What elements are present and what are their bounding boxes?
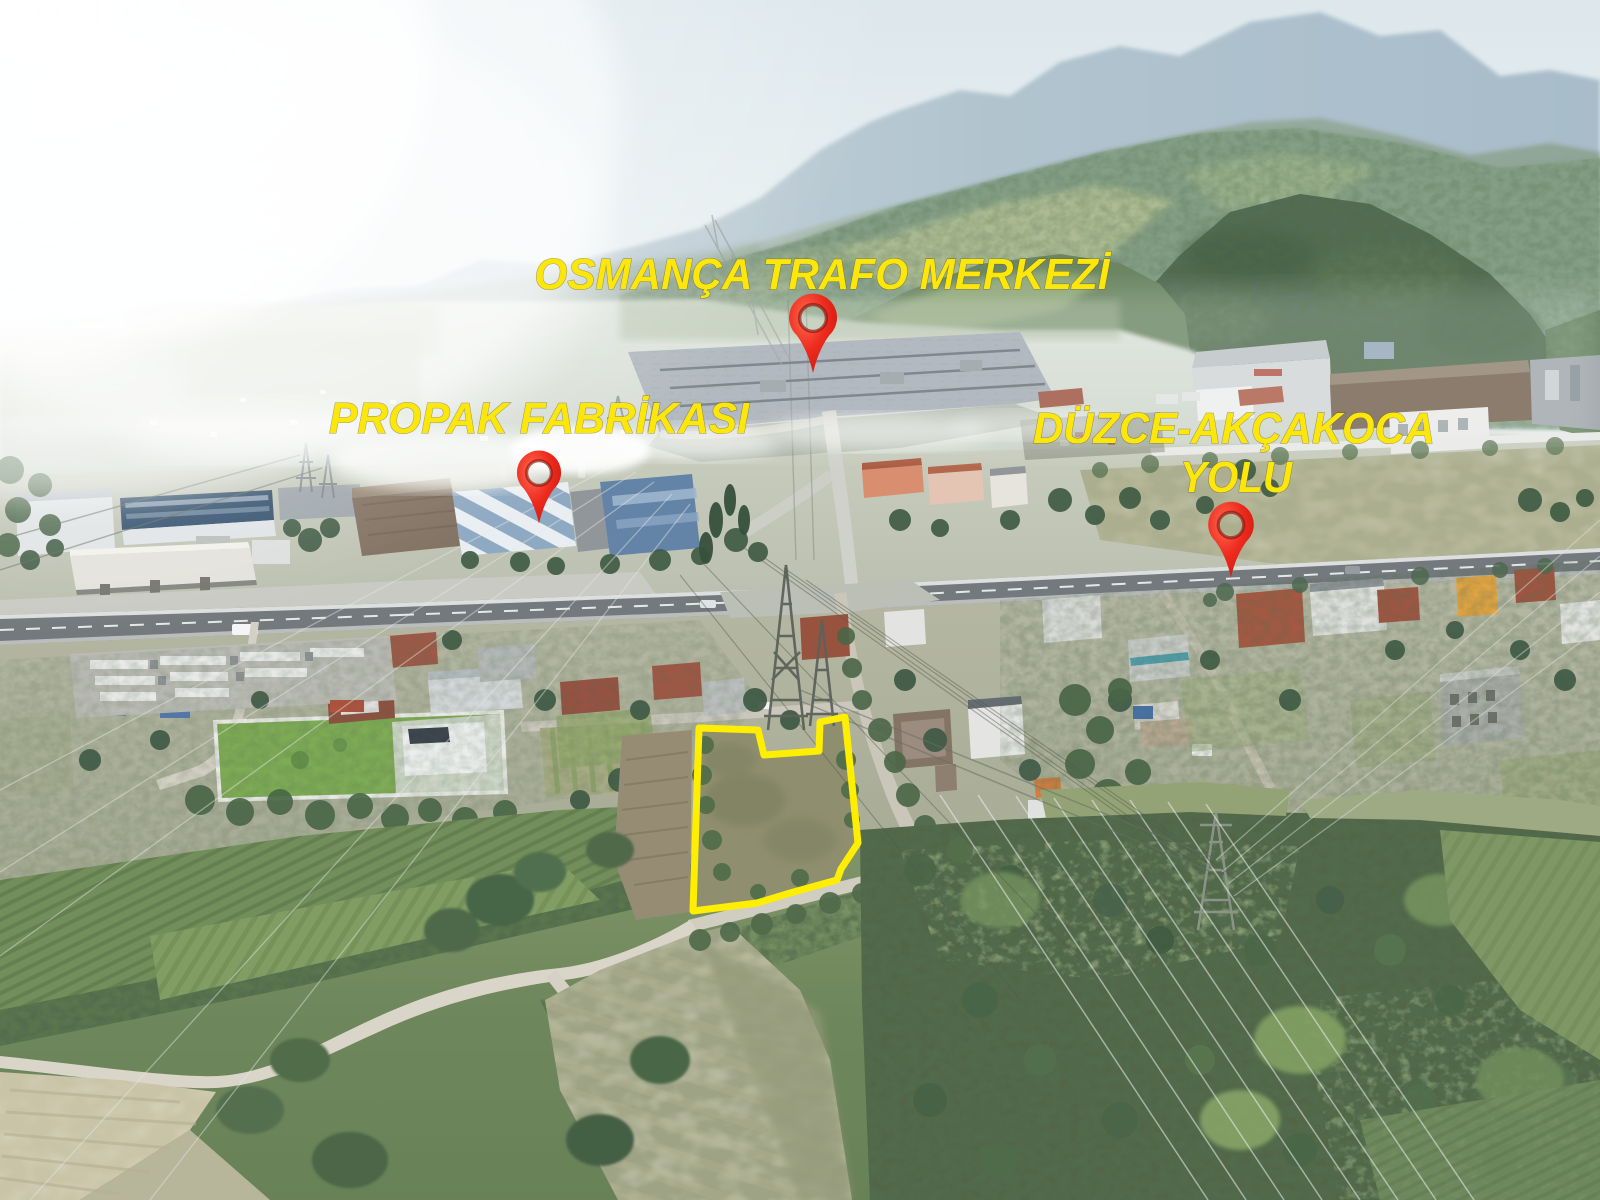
- svg-text:YOLU: YOLU: [1180, 453, 1293, 502]
- svg-text:DÜZCE-AKÇAKOCA: DÜZCE-AKÇAKOCA: [1033, 404, 1435, 453]
- svg-text:PROPAK FABRİKASI: PROPAK FABRİKASI: [329, 394, 750, 443]
- svg-text:OSMANÇA TRAFO MERKEZİ: OSMANÇA TRAFO MERKEZİ: [535, 250, 1113, 299]
